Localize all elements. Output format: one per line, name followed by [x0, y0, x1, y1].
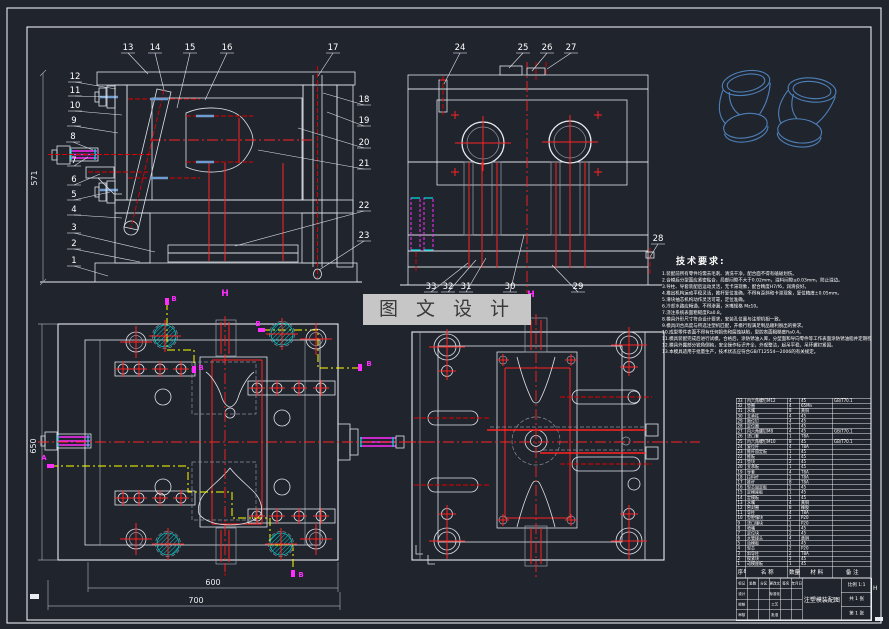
title-block-scale-area: 比例 1:1 共 1 张 第 1 张: [842, 579, 872, 621]
title-block-cell: 校核: [737, 600, 748, 611]
cad-drawing-canvas: 571: [0, 0, 889, 629]
callout-label: 27: [566, 43, 577, 53]
cavity-bore-left: [455, 116, 511, 171]
title-block-cell: [792, 600, 803, 611]
locating-ring: [500, 62, 546, 80]
callout-label: 13: [123, 43, 134, 53]
callout-label: 30: [505, 282, 516, 292]
section-letter: B: [171, 295, 176, 303]
callout-label: 14: [150, 43, 161, 53]
dim-text-571: 571: [30, 170, 39, 185]
bom-rows: 33内六角螺钉M12445GB/T70.132垫圈465Mn31水嘴8黄铜30支…: [736, 398, 871, 566]
callout-20: 20: [298, 128, 371, 148]
callout-24: 24: [444, 43, 467, 84]
title-block-cell: [759, 610, 770, 621]
section-letter: B: [255, 320, 260, 328]
wireframe-part-2: [775, 75, 837, 150]
callout-23: 23: [319, 231, 371, 270]
title-block-cell: [792, 610, 803, 621]
callout-label: 9: [71, 116, 76, 126]
front-section-view: 571: [30, 66, 362, 285]
title-block-cell: [781, 600, 792, 611]
section-letter: B: [198, 364, 203, 372]
tech-requirement-line: 13.本模具适用于批量生产，技术状态应符合GB/T12554—2006的有关规定…: [662, 349, 871, 356]
callout-label: 22: [359, 201, 370, 211]
callout-30: 30: [503, 235, 524, 292]
callout-label: 6: [71, 175, 76, 185]
callout-label: 8: [70, 132, 75, 142]
title-block-cell: 年月日: [792, 579, 803, 590]
callout-6: 6: [67, 174, 100, 185]
callout-14: 14: [148, 43, 164, 90]
plan-dimensions: 650 600 700: [29, 324, 340, 610]
drawing-title: 注塑模装配图: [803, 579, 842, 621]
bom-header: 序号名 称数量材 料备 注: [736, 566, 871, 578]
title-block-cell: 批准: [770, 610, 781, 621]
water-pipes: [487, 424, 658, 459]
callout-label: 21: [359, 159, 370, 169]
title-block-cell: [792, 589, 803, 600]
callout-19: 19: [327, 112, 371, 126]
ejector-pin-array: [464, 162, 589, 268]
callout-17: 17: [318, 43, 340, 76]
bom-header-cell: 名 称: [746, 566, 788, 578]
callout-label: 33: [426, 282, 437, 292]
callout-29: 29: [552, 265, 585, 292]
callout-label: 25: [518, 43, 529, 53]
guide-tab-top: [216, 320, 236, 356]
title-block-cell: [781, 610, 792, 621]
title-block-cell: 处数: [748, 579, 759, 590]
dim-text-700: 700: [188, 596, 203, 605]
side-section-view: [400, 62, 662, 293]
section-letter: B: [298, 571, 303, 579]
callout-label: 29: [573, 282, 584, 292]
callout-label: 15: [185, 43, 196, 53]
section-letter: B: [366, 360, 371, 368]
plan-view-fixed-half: [405, 314, 700, 578]
clamp-bolt: [439, 76, 447, 115]
sheets-cell: 共 1 张: [842, 593, 872, 607]
title-block-cell: 更改文件号: [770, 579, 781, 590]
guide-tab-bottom: [216, 528, 236, 576]
nozzle-assembly: [48, 146, 152, 194]
bom-header-cell: 数量: [788, 566, 800, 578]
callout-4: 4: [67, 205, 122, 218]
callout-label: 19: [359, 116, 370, 126]
bom-header-cell: 材 料: [800, 566, 833, 578]
title-block-cell: 标准化: [770, 589, 781, 600]
title-block-revision-grid: 标记处数分区更改文件号签名年月日设计标准化校核工艺审核批准: [737, 579, 803, 621]
title-block-cell: [781, 589, 792, 600]
title-block-cell: 分区: [759, 579, 770, 590]
bom-table: 33内六角螺钉M12445GB/T70.132垫圈465Mn31水嘴8黄铜30支…: [736, 398, 871, 578]
callout-label: 31: [461, 282, 472, 292]
callout-label: 2: [71, 239, 76, 249]
title-block-cell: 设计: [737, 589, 748, 600]
fold-mark-left: [30, 594, 39, 599]
cavity-insert: [152, 98, 302, 200]
dim-text-600: 600: [205, 578, 220, 587]
technical-requirements-title: 技术要求:: [676, 254, 871, 267]
callout-label: 5: [71, 190, 76, 200]
callout-label: 3: [71, 223, 76, 233]
cavity-plate-core: [497, 352, 577, 528]
sheet-no-cell: 第 1 张: [842, 607, 872, 621]
callout-label: 11: [70, 86, 81, 96]
callout-label: 24: [455, 43, 466, 53]
bom-header-row: 序号名 称数量材 料备 注: [736, 566, 871, 578]
title-block: 标记处数分区更改文件号签名年月日设计标准化校核工艺审核批准 注塑模装配图 比例 …: [736, 578, 871, 620]
callout-5: 5: [67, 190, 110, 200]
plan-view-moving-half: 650 600 700: [29, 298, 432, 610]
callout-label: 26: [542, 43, 553, 53]
title-block-cell: [759, 589, 770, 600]
scale-cell: 比例 1:1: [842, 579, 872, 593]
callout-label: 1: [71, 256, 76, 266]
callout-18: 18: [323, 93, 371, 105]
fold-mark-right: H: [873, 585, 878, 592]
callout-22: 22: [235, 201, 371, 246]
technical-requirements-lines: 1.装配前所有零件均需去毛刺、清洗干净，配合面不得有磕碰划伤。2.合模后分型面应…: [662, 271, 871, 356]
ejector-pins: [209, 118, 283, 261]
callout-label: 12: [70, 72, 81, 82]
cooling-slots: [414, 390, 652, 492]
callout-label: 20: [359, 138, 370, 148]
nozzle-plan: [41, 432, 91, 450]
wireframe-part-1: [713, 67, 779, 145]
title-block-cell: [748, 600, 759, 611]
callout-label: 10: [70, 101, 81, 111]
title-block-cell: [759, 600, 770, 611]
dim-text-650: 650: [29, 438, 38, 453]
callout-label: 28: [653, 234, 664, 244]
callout-13: 13: [121, 43, 148, 74]
callout-1: 1: [67, 256, 108, 276]
callout-label: 17: [328, 43, 339, 53]
callout-label: 32: [443, 282, 454, 292]
title-block-cell: [748, 610, 759, 621]
title-block-cell: 审核: [737, 610, 748, 621]
callout-label: 7: [71, 156, 76, 166]
title-block-cell: [748, 589, 759, 600]
bom-header-cell: 序号: [736, 566, 746, 578]
callout-label: 18: [359, 95, 370, 105]
section-h-mark: H: [221, 289, 229, 299]
callout-21: 21: [258, 150, 371, 169]
callout-2: 2: [67, 239, 140, 262]
callout-label: 16: [222, 43, 233, 53]
callout-3: 3: [67, 223, 155, 252]
callout-label: 4: [71, 205, 76, 215]
fold-mark-corner: [875, 617, 883, 621]
callout-label: 23: [359, 231, 370, 241]
title-block-cell: 工艺: [770, 600, 781, 611]
section-letter: A: [41, 454, 47, 462]
dim-571: 571: [30, 70, 46, 285]
callout-9: 9: [67, 116, 118, 133]
title-block-cell: 签名: [781, 579, 792, 590]
watermark: 图 文 设 计: [363, 294, 531, 325]
title-block-cell: 标记: [737, 579, 748, 590]
datum-mark-1: [416, 545, 423, 554]
callout-16: 16: [205, 43, 234, 100]
bom-header-cell: 备 注: [833, 566, 871, 578]
return-pin: [313, 66, 322, 279]
